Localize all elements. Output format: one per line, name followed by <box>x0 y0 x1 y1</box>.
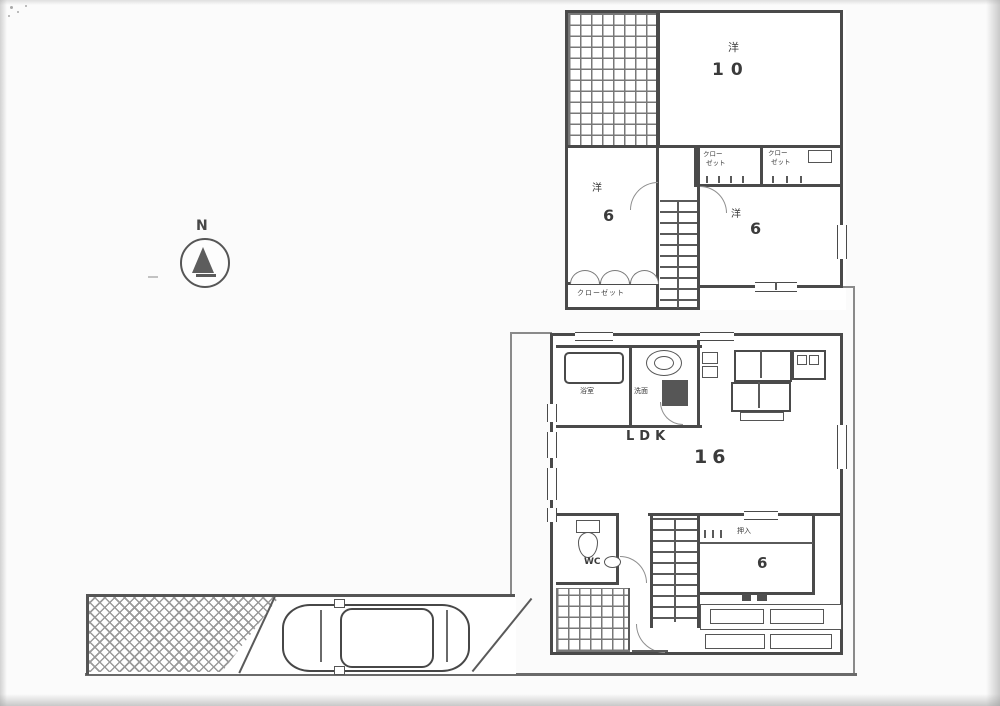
veranda-panel <box>710 609 764 624</box>
window-post <box>775 282 777 290</box>
stair-rail <box>674 518 676 622</box>
stove-burner-icon <box>797 355 807 365</box>
north-arrow-icon <box>192 247 214 273</box>
wall <box>556 513 618 516</box>
kitchen-counter <box>734 350 792 382</box>
window-panel <box>770 634 832 649</box>
stair-rail <box>677 200 679 308</box>
window <box>744 511 778 520</box>
wall <box>760 148 763 184</box>
balcony-grid-hatch <box>568 13 658 148</box>
scan-speck <box>148 276 158 278</box>
room-6-size-label: 6 <box>757 556 767 571</box>
kitchen-fixture <box>702 352 718 364</box>
parking-edge <box>86 594 89 675</box>
wall <box>556 582 619 585</box>
window-panel <box>705 634 765 649</box>
wall-mark <box>757 594 767 601</box>
entrance-threshold <box>632 650 668 652</box>
room-right-type-label: 洋 <box>731 210 741 220</box>
wall <box>629 347 632 428</box>
scan-edge <box>0 0 1000 5</box>
wall-mark <box>742 594 751 601</box>
boundary-line <box>510 332 552 334</box>
wall <box>697 148 700 288</box>
scan-speck <box>10 6 13 9</box>
island-divider <box>758 382 760 408</box>
door-hatch <box>704 530 706 538</box>
boundary-line <box>843 286 855 288</box>
door-hatch <box>772 176 774 183</box>
window <box>700 332 734 341</box>
scan-edge <box>986 0 1000 706</box>
scan-speck <box>17 11 19 13</box>
kitchen-fixture <box>702 366 718 378</box>
scan-speck <box>25 5 27 7</box>
wc-label: WC <box>584 558 601 567</box>
washroom-label: 洗面 <box>634 388 648 395</box>
room-left-size-label: 6 <box>603 208 614 224</box>
compass-base <box>196 274 216 277</box>
room-10-type-label: 洋 <box>728 42 739 53</box>
wall <box>697 285 700 310</box>
entrance-step <box>628 588 630 650</box>
compass-north-label: N <box>196 219 208 233</box>
kitchen-bench <box>740 412 784 421</box>
window <box>837 225 847 259</box>
door-hatch <box>706 176 708 183</box>
hand-basin-icon <box>604 556 621 568</box>
closet-left-label-line2: ゼット <box>706 160 726 167</box>
parking-edge <box>88 594 515 597</box>
closet-right-label-line2: ゼット <box>771 159 791 166</box>
kitchen-island <box>731 382 791 412</box>
wall <box>694 184 843 187</box>
boundary-line <box>853 287 855 675</box>
ldk-label: LDK <box>626 430 670 443</box>
door-hatch <box>720 530 722 538</box>
closet-label: 押入 <box>737 528 751 535</box>
ldk-size-label: 16 <box>694 448 730 467</box>
stove-burner-icon <box>809 355 819 365</box>
wall <box>656 148 659 310</box>
door-hatch <box>712 530 714 538</box>
counter-divider <box>760 350 762 378</box>
door-hatch <box>718 176 720 183</box>
window <box>547 404 557 422</box>
window <box>837 425 847 469</box>
bathroom-label: 浴室 <box>580 388 594 395</box>
door-hatch <box>730 176 732 183</box>
wall <box>697 340 700 428</box>
wall <box>697 592 815 595</box>
window <box>547 432 557 458</box>
bathtub-icon <box>564 352 624 384</box>
window <box>575 332 613 341</box>
wall <box>656 13 660 146</box>
room-right-size-label: 6 <box>750 221 761 237</box>
door-hatch <box>786 176 788 183</box>
window <box>547 468 557 500</box>
veranda-panel <box>770 609 824 624</box>
room-left-type-label: 洋 <box>592 184 602 194</box>
wall <box>568 145 843 148</box>
room-10-size-label: 10 <box>712 62 750 79</box>
door-hatch <box>742 176 744 183</box>
wall <box>565 10 568 310</box>
closet-shelf-icon <box>808 150 832 163</box>
floor-plan-canvas: N 洋 10 クロー ゼット クロー ゼット 洋 6 クローゼット 洋 <box>0 0 1000 706</box>
closet-left-label-line1: クロー <box>703 151 723 158</box>
wall <box>550 652 843 655</box>
entrance-tile-grid <box>556 588 630 652</box>
closet-bottom-label: クローゼット <box>577 290 625 297</box>
closet-strip-edge <box>700 542 813 544</box>
boundary-line <box>510 332 512 594</box>
scan-edge <box>0 694 1000 706</box>
wall <box>812 513 815 595</box>
closet-right-label-line1: クロー <box>768 150 788 157</box>
scan-edge <box>0 0 7 706</box>
washbasin-inner <box>654 356 674 370</box>
wall <box>565 10 843 13</box>
scan-speck <box>8 15 10 17</box>
door-hatch <box>800 176 802 183</box>
wall <box>616 513 619 585</box>
